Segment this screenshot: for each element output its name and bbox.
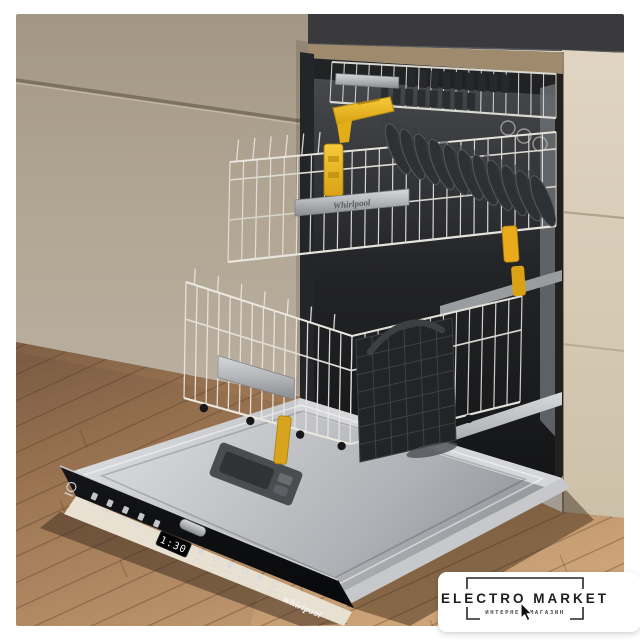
watermark-title: ELECTRO MARKET [441,591,609,606]
product-photo: 1:30 Whirlpool Whirlpool [0,0,640,640]
yellow-fold-support [324,144,343,196]
left-cabinet-panel [16,14,308,400]
watermark-card: ELECTRO MARKET ИНТЕРНЕТ-МАГАЗИН [438,572,640,632]
cutlery-basket [356,318,456,462]
right-cabinet-column [562,50,624,518]
kitchen-scene: 1:30 Whirlpool Whirlpool [0,0,640,640]
